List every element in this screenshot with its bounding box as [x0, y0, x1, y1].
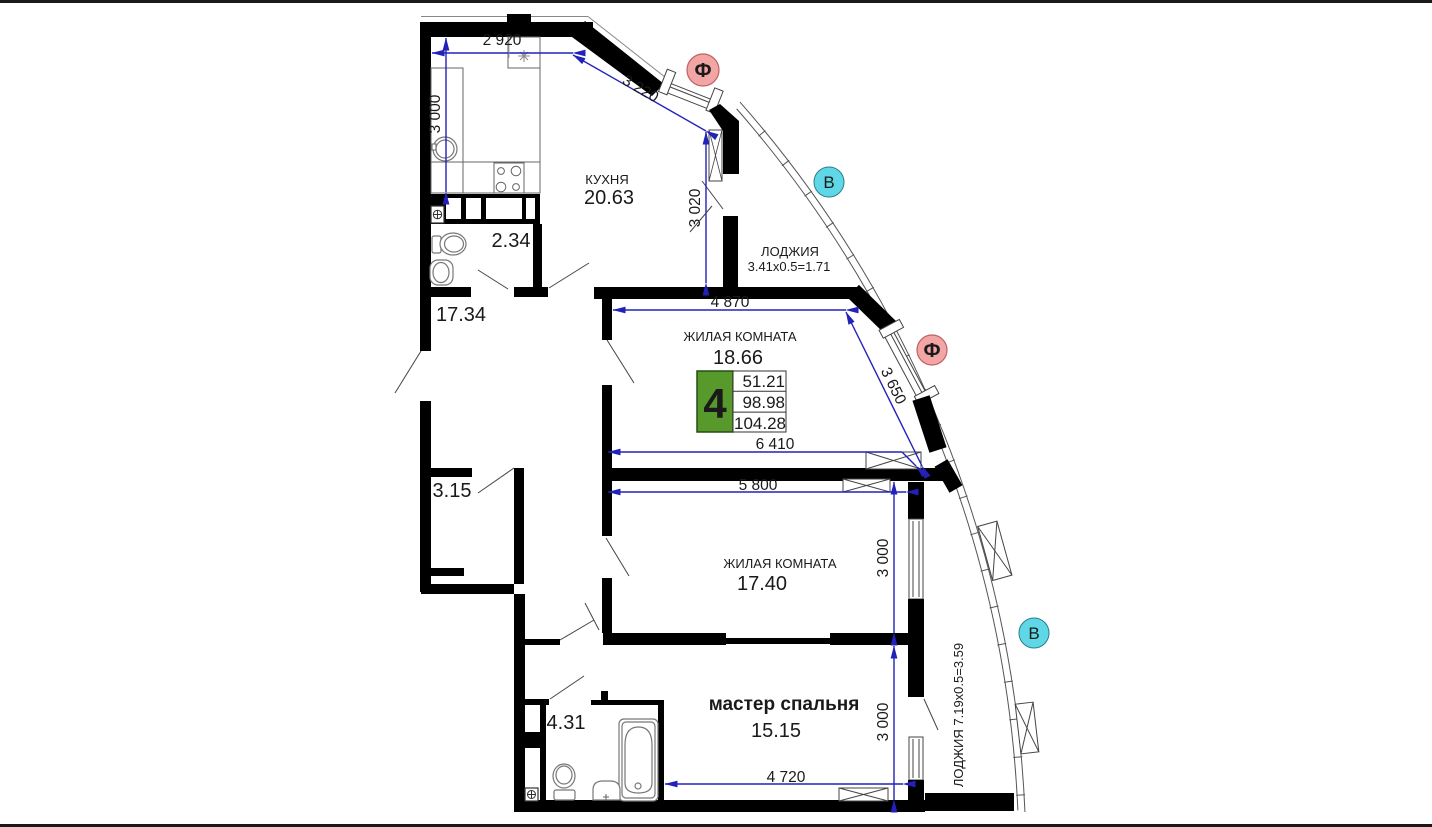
- svg-text:4 720: 4 720: [767, 769, 806, 786]
- svg-text:КУХНЯ: КУХНЯ: [585, 172, 628, 187]
- svg-text:3 000: 3 000: [427, 94, 444, 133]
- svg-text:15.15: 15.15: [751, 720, 801, 742]
- svg-text:3 020: 3 020: [687, 188, 704, 227]
- svg-text:3 000: 3 000: [875, 538, 892, 577]
- svg-text:Ф: Ф: [923, 340, 940, 362]
- svg-text:2 920: 2 920: [483, 32, 522, 49]
- svg-text:51.21: 51.21: [742, 372, 785, 391]
- svg-text:4 870: 4 870: [711, 294, 750, 311]
- svg-text:3 000: 3 000: [875, 702, 892, 741]
- svg-text:ЛОДЖИЯ: ЛОДЖИЯ: [761, 244, 819, 259]
- svg-text:17.34: 17.34: [436, 304, 486, 326]
- svg-text:4.31: 4.31: [547, 712, 586, 734]
- svg-text:17.40: 17.40: [737, 573, 787, 595]
- svg-text:2.34: 2.34: [492, 230, 531, 252]
- svg-text:ЛОДЖИЯ 7.19х0.5=3.59: ЛОДЖИЯ 7.19х0.5=3.59: [951, 643, 966, 787]
- svg-text:18.66: 18.66: [713, 347, 763, 369]
- svg-text:Ф: Ф: [694, 60, 711, 82]
- svg-text:ЖИЛАЯ КОМНАТА: ЖИЛАЯ КОМНАТА: [723, 556, 836, 571]
- svg-text:6 410: 6 410: [756, 436, 795, 453]
- svg-text:ЖИЛАЯ КОМНАТА: ЖИЛАЯ КОМНАТА: [683, 329, 796, 344]
- svg-text:3.41х0.5=1.71: 3.41х0.5=1.71: [748, 259, 831, 274]
- svg-text:мастер спальня: мастер спальня: [709, 694, 860, 715]
- svg-text:4: 4: [703, 380, 727, 427]
- svg-text:5 800: 5 800: [739, 477, 778, 494]
- svg-text:20.63: 20.63: [584, 187, 634, 209]
- svg-text:104.28: 104.28: [734, 414, 786, 433]
- svg-text:98.98: 98.98: [742, 393, 785, 412]
- svg-text:3.15: 3.15: [433, 480, 472, 502]
- svg-text:В: В: [1028, 624, 1039, 643]
- svg-text:В: В: [823, 173, 834, 192]
